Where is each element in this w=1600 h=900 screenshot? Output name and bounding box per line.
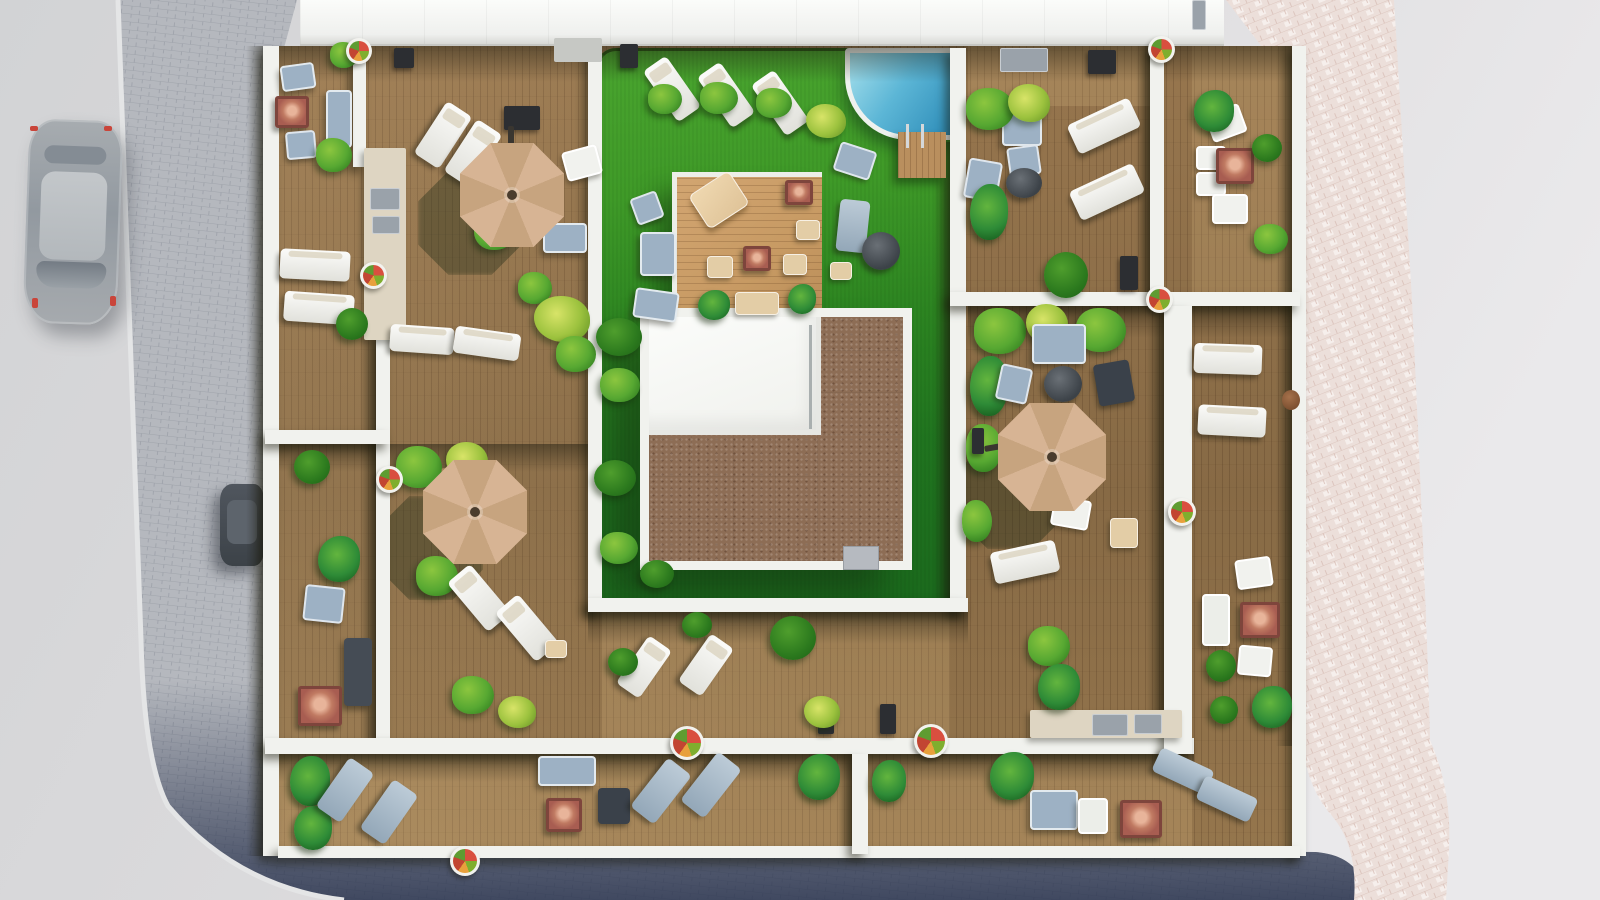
sofa — [1032, 324, 1086, 364]
pouf — [707, 256, 733, 278]
plant — [1254, 224, 1288, 254]
car-light — [32, 298, 38, 308]
antenna — [809, 325, 812, 429]
grill — [1088, 50, 1116, 74]
flower-pot — [670, 726, 704, 760]
flower-pot — [346, 38, 372, 64]
bush — [682, 612, 712, 638]
armchair — [302, 584, 346, 624]
rooftop-render-scene — [0, 0, 1600, 900]
bush — [608, 648, 638, 676]
sofa — [632, 287, 680, 323]
fire-table — [275, 96, 309, 128]
car-rear-window — [44, 145, 107, 165]
utility-box — [843, 546, 879, 570]
flower-pot — [360, 262, 387, 289]
pouf — [830, 262, 852, 280]
plant-yellow — [1008, 84, 1050, 122]
palm-plant — [1038, 664, 1080, 710]
palm-plant — [698, 290, 730, 320]
lounger-white — [1197, 404, 1266, 438]
bush — [596, 318, 642, 356]
lounger-white — [279, 248, 350, 282]
plant — [1028, 626, 1070, 666]
sofa — [538, 756, 596, 786]
pouf — [1110, 518, 1138, 548]
terrace-wall — [1164, 306, 1192, 754]
pouf — [545, 640, 567, 658]
terrace-wall — [1292, 46, 1306, 856]
terrace-wall — [265, 430, 390, 444]
parasol-umbrella — [423, 460, 527, 564]
terrace-wall — [1150, 46, 1164, 292]
sofa — [1030, 790, 1078, 830]
lounger-white — [1193, 343, 1262, 375]
plant — [962, 500, 992, 542]
car-light — [104, 126, 112, 131]
sofa-white — [1202, 594, 1230, 646]
armchair-white — [1237, 645, 1273, 678]
palm-plant — [872, 760, 906, 802]
lounger-white — [389, 324, 455, 355]
fire-table — [743, 246, 771, 271]
fire-table — [1216, 148, 1254, 184]
car-light — [30, 126, 38, 131]
round-table — [1044, 366, 1082, 402]
grill — [394, 48, 414, 68]
kitchen-appliance — [1134, 714, 1162, 734]
sofa-dark — [344, 638, 372, 706]
sofa — [640, 232, 676, 276]
armchair-dark — [1093, 359, 1136, 407]
car-light — [110, 296, 116, 306]
pouf — [735, 292, 779, 315]
armchair-white — [1212, 194, 1248, 224]
bush — [640, 560, 674, 588]
plant-yellow — [498, 696, 536, 728]
plant-pot — [1282, 390, 1300, 410]
kitchen-appliance — [370, 188, 400, 210]
bush — [1252, 134, 1282, 162]
kitchen-appliance — [372, 216, 400, 234]
flower-pot — [914, 724, 948, 758]
kitchen-appliance — [1192, 0, 1206, 30]
plant — [648, 84, 682, 114]
palm-plant — [1252, 686, 1292, 728]
pouf — [796, 220, 820, 240]
flower-pot — [1168, 498, 1196, 526]
terrace-wall — [852, 754, 868, 854]
palm-plant — [318, 536, 360, 582]
plant — [700, 82, 738, 114]
plant — [316, 138, 352, 172]
plant-yellow — [806, 104, 846, 138]
plant — [966, 88, 1014, 130]
grill — [1120, 256, 1138, 290]
parasol-umbrella — [460, 143, 564, 247]
stair-core-structure — [640, 308, 912, 570]
bush — [770, 616, 816, 660]
terrace-wall — [265, 738, 1194, 754]
armchair — [285, 130, 317, 161]
parked-car-gray — [22, 118, 123, 325]
outdoor-counter — [364, 148, 406, 340]
flower-pot — [450, 846, 480, 876]
wall-shadow — [1146, 306, 1165, 754]
grill — [880, 704, 896, 734]
pouf — [783, 254, 807, 275]
car-roof — [39, 171, 108, 261]
bush — [1206, 650, 1236, 682]
sofa — [279, 62, 316, 92]
concrete-pad — [554, 38, 602, 62]
fire-table — [1240, 602, 1280, 638]
plant — [600, 368, 640, 402]
parasol-umbrella — [998, 403, 1106, 511]
round-table — [862, 232, 900, 270]
plant — [452, 676, 494, 714]
terrace-wall — [588, 598, 968, 612]
plant-yellow — [534, 296, 590, 342]
wall-shadow — [933, 142, 951, 598]
grill — [972, 428, 984, 454]
palm-plant — [788, 284, 816, 314]
bush — [294, 450, 330, 484]
palm-plant — [990, 752, 1034, 800]
bush — [1210, 696, 1238, 724]
bush — [594, 460, 636, 496]
plant — [556, 336, 596, 372]
armchair-white — [1234, 556, 1274, 591]
fire-table — [546, 798, 582, 832]
flower-pot — [376, 466, 403, 493]
terrace-wall — [278, 846, 1300, 858]
plant-yellow — [804, 696, 840, 728]
wall-shadow — [838, 754, 853, 856]
fire-table — [298, 686, 342, 726]
wall-shadow — [246, 46, 264, 856]
terrace-wall — [376, 335, 390, 738]
plant — [756, 88, 792, 118]
terrace-wall — [263, 46, 279, 856]
plant — [600, 532, 638, 564]
wall-shadow — [1136, 46, 1151, 292]
plant — [974, 308, 1026, 354]
kitchen-appliance — [1000, 48, 1048, 72]
kitchen-appliance — [1092, 714, 1128, 736]
bush — [336, 308, 368, 340]
stair-core-white-roof — [649, 317, 821, 435]
round-table — [1006, 168, 1042, 198]
palm-plant — [1194, 90, 1234, 132]
armchair-dark — [598, 788, 630, 824]
fire-table — [785, 180, 813, 205]
roof-band — [300, 0, 1224, 46]
terrace-wall — [950, 292, 1300, 306]
palm-plant — [798, 754, 840, 800]
palm-plant — [970, 184, 1008, 240]
fire-table — [1120, 800, 1162, 838]
pool-ladder — [906, 124, 924, 148]
flower-pot — [1146, 286, 1173, 313]
grill — [620, 44, 638, 68]
sofa-white — [1078, 798, 1108, 834]
bush — [1044, 252, 1088, 298]
flower-pot — [1148, 36, 1175, 63]
car-windshield — [36, 261, 107, 289]
